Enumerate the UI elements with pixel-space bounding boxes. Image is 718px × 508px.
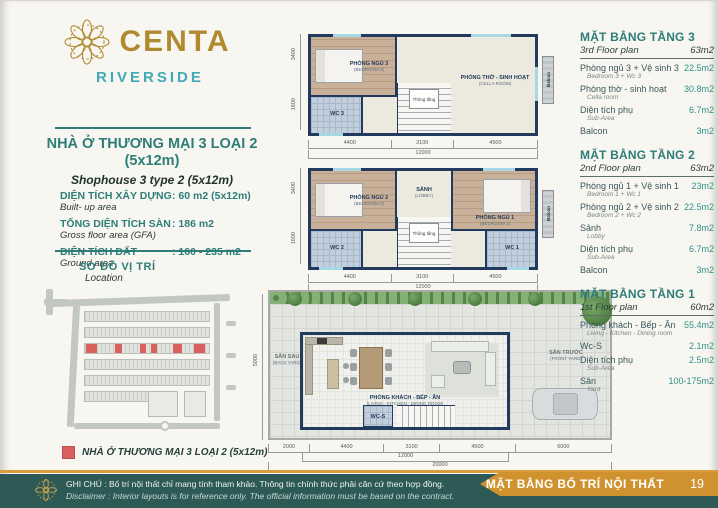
location-subtitle: Location — [85, 273, 123, 284]
row-sublabel: Sub-Area — [587, 254, 714, 261]
dim-segment: 3100 — [391, 140, 453, 149]
lot-row-highlighted — [84, 343, 210, 354]
row-value: 3m2 — [696, 265, 714, 275]
dim-value: 4500 — [489, 140, 501, 147]
spec-item: DIỆN TÍCH XÂY DỰNG: 60 m2 (5x12m) Built-… — [60, 190, 276, 213]
tree-icon — [528, 292, 542, 306]
row-value: 6.7m2 — [689, 244, 714, 254]
bedroom3-label: PHÒNG NGỦ 3 (BEDROOM 3) — [341, 61, 397, 73]
page-title-size: (5x12m) — [28, 153, 276, 170]
dim-segment: 6000 — [515, 444, 612, 453]
dim-depth: 5000 — [253, 354, 259, 366]
tree-icon — [348, 292, 362, 306]
table-row: Sảnh7.8m2 — [580, 223, 714, 233]
location-title: SƠ ĐỒ VỊ TRÍ — [79, 261, 156, 273]
void-label: Thông tầng — [409, 89, 439, 109]
kitchen-counter-icon — [305, 337, 313, 395]
row-label: Diện tích phụ — [580, 244, 633, 254]
dim-segment: 3100 — [391, 274, 453, 283]
dining-table-icon — [359, 347, 383, 389]
dim-segment: 4400 — [309, 444, 383, 453]
dim-value: 3100 — [406, 444, 418, 451]
ribbon-title: MẶT BẰNG BỐ TRÍ NỘI THẤT — [486, 477, 664, 491]
floor3-table: MẶT BẰNG TẦNG 3 3rd Floor plan 63m2 Phòn… — [580, 30, 714, 136]
shophouse-title: NHÀ Ở THƯƠNG MẠI 3 LOẠI 2 (5x12m) Shopho… — [28, 136, 276, 187]
coffee-table-icon — [453, 361, 471, 374]
dim-row: 4400 3100 4500 — [308, 140, 538, 149]
footer-notes: GHI CHÚ : Bố trí nội thất chỉ mang tính … — [66, 478, 486, 502]
backyard-label: SÂN SAU (BACK YARD) — [272, 354, 302, 366]
road — [214, 303, 220, 421]
section-title: MẶT BẰNG TẦNG 3 — [580, 30, 714, 44]
row-sublabel: Bedroom 3 + Wc 3 — [587, 73, 714, 80]
car-roof — [553, 393, 577, 416]
bedroom1-area: PHÒNG NGỦ 1 (BEDROOM 1) — [451, 171, 535, 231]
cella-label: PHÒNG THỜ - SINH HOẠT (CELLA ROOM) — [453, 75, 537, 87]
dim-depth1: 3400 — [291, 182, 297, 194]
bedroom3-area: PHÒNG NGỦ 3 (BEDROOM 3) — [311, 37, 397, 97]
dim-segment: 4500 — [453, 274, 538, 283]
row-value: 55.4m2 — [684, 320, 714, 330]
room-name: WC 2 — [330, 245, 344, 251]
map-legend: NHÀ Ở THƯƠNG MẠI 3 LOẠI 2 (5x12m) — [62, 446, 267, 459]
room-name: WC 3 — [330, 111, 344, 117]
wc1-area: WC 1 — [485, 231, 535, 267]
row-sublabel: Sub-Area — [587, 365, 714, 372]
room-subname: (BEDROOM 2) — [341, 201, 397, 207]
legend-label: NHÀ Ở THƯƠNG MẠI 3 LOẠI 2 (5x12m) — [82, 447, 267, 458]
row-value: 7.8m2 — [689, 223, 714, 233]
row-label: Diện tích phụ — [580, 105, 633, 115]
row-label: Sân — [580, 376, 596, 386]
lot-row — [84, 327, 210, 338]
window — [507, 267, 529, 270]
footer-logo-icon — [34, 478, 58, 507]
floor1-plan: 5000 SÂN SAU (BACK YARD) — [258, 290, 616, 470]
stool-icon — [343, 363, 349, 369]
room-name: WC-S — [371, 414, 386, 420]
row-value: 22.5m2 — [684, 63, 714, 73]
bedroom2-label: PHÒNG NGỦ 2 (BEDROOM 2) — [341, 195, 397, 207]
wc2-label: WC 2 — [321, 245, 353, 251]
wcs-area: WC-S — [363, 405, 393, 427]
dim-line — [300, 168, 301, 264]
highlight-lot — [86, 344, 97, 353]
row-label: Phòng ngủ 3 + Vệ sinh 3 — [580, 63, 679, 73]
table-row: Balcon3m2 — [580, 265, 714, 275]
legend-color-swatch — [62, 446, 75, 459]
row-label: Sảnh — [580, 223, 601, 233]
section-subtitle: 1st Floor plan — [580, 302, 638, 313]
balcony-label: Balcon — [546, 72, 551, 87]
footer-note-en: Disclaimer : Interior layouts is for ref… — [66, 490, 486, 502]
room-subname: (BEDROOM 1) — [467, 221, 523, 227]
table-row: Diện tích phụ6.7m2 — [580, 244, 714, 254]
footer-note-vi: GHI CHÚ : Bố trí nội thất chỉ mang tính … — [66, 478, 486, 490]
highlight-lot — [115, 344, 122, 353]
tree-icon — [288, 292, 302, 306]
highlight-lot — [173, 344, 182, 353]
wc3-area: WC 3 — [311, 97, 363, 133]
row-value: 23m2 — [691, 181, 714, 191]
dim-value: 3100 — [416, 140, 428, 147]
dim-row: 4400 3100 4500 — [308, 274, 538, 283]
spec-value: : 60 m2 (5x12m) — [172, 190, 251, 202]
room-subname: (BEDROOM 3) — [341, 67, 397, 73]
window — [333, 34, 361, 37]
table-row: Phòng khách - Bếp - Ăn55.4m2 — [580, 320, 714, 330]
row-value: 30.8m2 — [684, 84, 714, 94]
bedroom1-label: PHÒNG NGỦ 1 (BEDROOM 1) — [467, 215, 523, 227]
chair-icon — [350, 349, 357, 357]
dim-row: 2000 4400 3100 4500 6000 — [268, 444, 612, 453]
road — [74, 423, 220, 429]
dim-line — [262, 294, 263, 440]
floor-tables-panel: MẶT BẰNG TẦNG 3 3rd Floor plan 63m2 Phòn… — [580, 30, 714, 405]
table-row: Wc-S2.1m2 — [580, 341, 714, 351]
table-row: Balcon3m2 — [580, 126, 714, 136]
window — [319, 133, 343, 136]
row-sublabel: Cella room — [587, 94, 714, 101]
section-total: 63m2 — [690, 163, 714, 174]
wc1-label: WC 1 — [496, 245, 528, 251]
room-subname: (BACK YARD) — [272, 360, 302, 366]
row-value: 2.1m2 — [689, 341, 714, 351]
row-label: Wc-S — [580, 341, 602, 351]
roundabout — [160, 421, 170, 431]
lot-row — [84, 375, 210, 386]
tree-icon — [468, 292, 482, 306]
room-name: Thông tầng — [413, 231, 436, 236]
dim-segment: 12000 — [302, 453, 509, 462]
dim-row-total: 12000 — [308, 150, 538, 159]
dim-segment: 4400 — [308, 274, 391, 283]
section-total: 60m2 — [690, 302, 714, 313]
site-map — [44, 287, 238, 439]
chair-icon — [350, 363, 357, 371]
dim-depth1: 3400 — [291, 48, 297, 60]
dim-segment: 2000 — [268, 444, 309, 453]
stool-icon — [343, 377, 349, 383]
room-name: WC 1 — [505, 245, 519, 251]
dim-value: 4400 — [340, 444, 352, 451]
floor2-table: MẶT BẰNG TẦNG 2 2nd Floor plan 63m2 Phòn… — [580, 148, 714, 275]
floor1-table: MẶT BẰNG TẦNG 1 1st Floor plan 60m2 Phòn… — [580, 287, 714, 393]
dim-value: 4400 — [344, 274, 356, 281]
sofa-icon — [431, 341, 489, 352]
page-title: NHÀ Ở THƯƠNG MẠI 3 LOẠI 2 — [28, 136, 276, 153]
bedroom2-area: PHÒNG NGỦ 2 (BEDROOM 2) — [311, 171, 397, 231]
road-stub — [226, 385, 236, 390]
road — [67, 301, 81, 427]
dim-depth2: 1600 — [291, 98, 297, 110]
armchair-icon — [431, 375, 445, 388]
dim-segment: 4500 — [439, 444, 515, 453]
dim-value: 6000 — [557, 444, 569, 451]
lot-row — [84, 311, 210, 322]
balcony-area: Balcon — [542, 56, 554, 104]
spec-value: : 160 - 235 m2 — [172, 246, 241, 258]
dim-value: 4400 — [344, 140, 356, 147]
dim-segment: 12000 — [308, 150, 538, 159]
wcs-label: WC-S — [366, 414, 390, 420]
row-label: Phòng khách - Bếp - Ăn — [580, 320, 676, 330]
window — [471, 34, 511, 37]
dim-value: 20000 — [432, 462, 447, 469]
room-subname: (CELLA ROOM) — [453, 81, 537, 87]
page-number: 19 — [690, 477, 704, 491]
table-row: Sân100-175m2 — [580, 376, 714, 386]
hedge — [270, 292, 610, 304]
lot-row — [84, 359, 210, 370]
dim-value: 3100 — [416, 274, 428, 281]
spec-sub: Built- up area — [60, 202, 276, 213]
floor3-body: PHÒNG NGỦ 3 (BEDROOM 3) WC 3 Thông tầng … — [308, 34, 538, 136]
divider — [55, 250, 251, 252]
page-subtitle: Shophouse 3 type 2 (5x12m) — [28, 173, 276, 187]
dim-row: 12000 — [302, 453, 509, 462]
void-label: Thông tầng — [409, 223, 439, 243]
floor2-plan: 3400 1600 PHÒNG NGỦ 2 (BEDROOM 2) WC 2 S… — [288, 160, 560, 294]
dim-segment: 4500 — [453, 140, 538, 149]
row-label: Diện tích phụ — [580, 355, 633, 365]
row-value: 3m2 — [696, 126, 714, 136]
row-label: Balcon — [580, 265, 608, 275]
wc3-label: WC 3 — [321, 111, 353, 117]
dim-value: 12000 — [415, 150, 430, 157]
table-row: Phòng ngủ 1 + Vệ sinh 123m2 — [580, 181, 714, 191]
dim-depth2: 1600 — [291, 232, 297, 244]
highlight-lot — [151, 344, 157, 353]
lot-area: SÂN SAU (BACK YARD) — [268, 290, 612, 440]
stairs-area — [397, 405, 455, 427]
row-label: Phòng ngủ 1 + Vệ sinh 1 — [580, 181, 679, 191]
chair-icon — [350, 377, 357, 385]
tree-icon — [408, 292, 422, 306]
dim-value: 12000 — [398, 453, 413, 460]
amenity-block — [184, 391, 206, 417]
window — [483, 168, 515, 171]
centa-logo: CENTA RIVERSIDE — [38, 16, 254, 86]
dim-segment: 4400 — [308, 140, 391, 149]
window — [319, 267, 343, 270]
row-sublabel: Lobby — [587, 233, 714, 240]
mandala-icon — [61, 16, 113, 68]
section-subtitle: 3rd Floor plan — [580, 45, 639, 56]
table-row: Diện tích phụ2.5m2 — [580, 355, 714, 365]
spec-sub: Gross floor area (GFA) — [60, 230, 276, 241]
chair-icon — [385, 377, 392, 385]
floor2-body: PHÒNG NGỦ 2 (BEDROOM 2) WC 2 SẢNH (LOBBY… — [308, 168, 538, 270]
brochure-page: CENTA RIVERSIDE NHÀ Ở THƯƠNG MẠI 3 LOẠI … — [0, 0, 718, 508]
row-value: 2.5m2 — [689, 355, 714, 365]
road-stub — [226, 353, 236, 358]
kitchen-island-icon — [327, 359, 339, 389]
spec-label: DIỆN TÍCH XÂY DỰNG — [60, 190, 172, 202]
table-row: Phòng ngủ 3 + Vệ sinh 322.5m2 — [580, 63, 714, 73]
row-value: 6.7m2 — [689, 105, 714, 115]
footer-bar: GHI CHÚ : Bố trí nội thất chỉ mang tính … — [0, 474, 718, 508]
balcony-area: Balcon — [542, 190, 554, 238]
section-title: MẶT BẰNG TẦNG 2 — [580, 148, 714, 162]
spec-label: TỔNG DIỆN TÍCH SÀN — [60, 218, 172, 230]
spec-value: : 186 m2 — [172, 218, 214, 230]
row-sublabel: Sub-Area — [587, 115, 714, 122]
section-total: 63m2 — [690, 45, 714, 56]
row-label: Phòng ngủ 2 + Vệ sinh 2 — [580, 202, 679, 212]
row-label: Balcon — [580, 126, 608, 136]
dim-line — [300, 34, 301, 130]
row-sublabel: Yard — [587, 386, 714, 393]
dim-value: 2000 — [283, 444, 295, 451]
brand-subname: RIVERSIDE — [96, 69, 254, 86]
balcony-label: Balcon — [546, 206, 551, 221]
wc2-area: WC 2 — [311, 231, 363, 267]
dim-value: 4500 — [471, 444, 483, 451]
window — [535, 67, 538, 101]
room-subname: (LOBBY) — [399, 193, 449, 199]
table-row: Phòng ngủ 2 + Vệ sinh 222.5m2 — [580, 202, 714, 212]
row-label: Phòng thờ - sinh hoạt — [580, 84, 666, 94]
section-subtitle: 2nd Floor plan — [580, 163, 641, 174]
lobby-label: SẢNH (LOBBY) — [399, 187, 449, 199]
bed-icon — [483, 179, 531, 213]
spec-item: TỔNG DIỆN TÍCH SÀN: 186 m2 Gross floor a… — [60, 218, 276, 241]
footer-ribbon: MẶT BẰNG BỐ TRÍ NỘI THẤT 19 — [480, 472, 718, 496]
house-area: PHÒNG KHÁCH - BẾP - ĂN (LIVING - KITCHEN… — [300, 332, 510, 430]
row-sublabel: Bedroom 1 + Wc 1 — [587, 191, 714, 198]
chair-icon — [385, 363, 392, 371]
table-row: Diện tích phụ6.7m2 — [580, 105, 714, 115]
floor3-plan: 3400 1600 PHÒNG NGỦ 3 (BEDROOM 3) WC 3 T… — [288, 26, 560, 160]
dim-value: 4500 — [489, 274, 501, 281]
room-name: Thông tầng — [413, 97, 436, 102]
highlight-lot — [140, 344, 146, 353]
amenity-block — [148, 391, 178, 417]
stove-icon — [317, 338, 327, 344]
divider — [55, 127, 251, 129]
spec-label: DIỆN TÍCH ĐẤT — [60, 246, 172, 258]
row-value: 100-175m2 — [668, 376, 714, 386]
row-value: 22.5m2 — [684, 202, 714, 212]
sofa-icon — [485, 352, 496, 386]
brand-name: CENTA — [119, 25, 230, 59]
row-sublabel: Living - Kitchen - Dining room — [587, 330, 714, 337]
table-row: Phòng thờ - sinh hoạt30.8m2 — [580, 84, 714, 94]
section-title: MẶT BẰNG TẦNG 1 — [580, 287, 714, 301]
road-stub — [226, 321, 236, 326]
dim-segment: 3100 — [383, 444, 439, 453]
row-sublabel: Bedroom 2 + Wc 2 — [587, 212, 714, 219]
chair-icon — [385, 349, 392, 357]
highlight-lot — [194, 344, 205, 353]
window — [333, 168, 361, 171]
